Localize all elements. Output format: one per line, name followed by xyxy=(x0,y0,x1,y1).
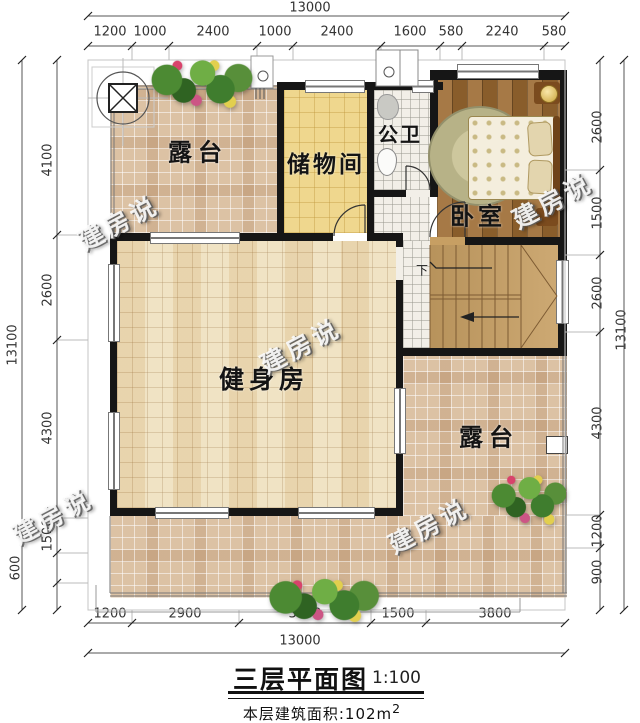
room-label-terrace-bottom-right: 露台 xyxy=(459,418,519,453)
room-label-bathroom: 公卫 xyxy=(378,119,422,148)
floor-plan-page: 露台 储物间 公卫 卧室 健身房 露台 下 13000 1200 1000 24… xyxy=(0,0,640,723)
room-label-terrace-top-left: 露台 xyxy=(168,133,228,168)
plants-top-terrace xyxy=(148,52,253,114)
room-label-bedroom: 卧室 xyxy=(450,197,506,232)
stairs-down-label: 下 xyxy=(416,262,428,279)
plants-bottom-balcony xyxy=(265,574,380,626)
room-label-storage: 储物间 xyxy=(287,145,365,179)
plants-terrace-corner xyxy=(490,465,566,533)
